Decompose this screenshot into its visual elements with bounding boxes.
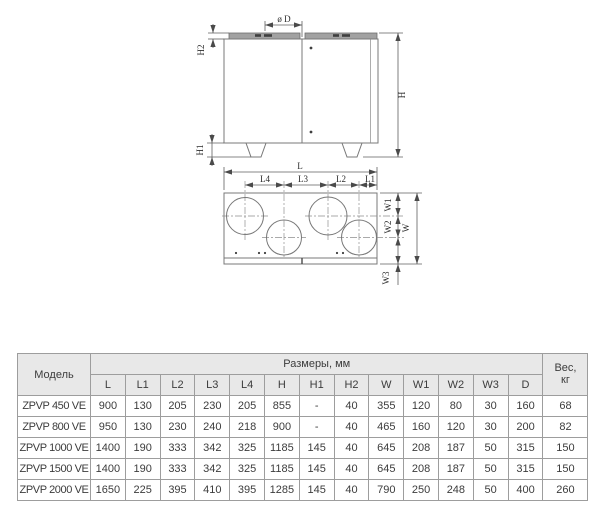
label-diameter-d: ø D [277,14,291,24]
value-cell: 342 [195,459,230,480]
dim-columns-row: LL1L2L3L4HH1H2WW1W2W3D [18,375,588,396]
value-cell: 645 [369,438,404,459]
roof-panel-right [305,33,377,39]
label-h: H [397,91,407,98]
value-cell: 342 [195,438,230,459]
column-header-d: D [508,375,543,396]
value-cell: 395 [160,480,195,501]
value-cell: 900 [91,396,126,417]
value-cell: 30 [473,396,508,417]
label-l4: L4 [260,174,270,184]
value-cell: 50 [473,480,508,501]
value-cell: 410 [195,480,230,501]
spec-table-container: Модель Размеры, мм Вес, кг LL1L2L3L4HH1H… [17,353,588,501]
column-header-w3: W3 [473,375,508,396]
dimensions-group-header: Размеры, мм [91,354,543,375]
door-handle-dot [310,131,313,134]
label-w: W [401,223,411,232]
value-cell: 900 [264,417,299,438]
table-body: ZPVP 450 VE900130205230205855-4035512080… [18,396,588,501]
value-cell: 1400 [91,438,126,459]
model-cell: ZPVP 1000 VE [18,438,91,459]
value-cell: 1285 [264,480,299,501]
value-cell: 160 [508,396,543,417]
value-cell: 190 [125,438,160,459]
column-header-w1: W1 [404,375,439,396]
weight-cell: 150 [543,438,588,459]
value-cell: 145 [299,459,334,480]
label-w2: W2 [383,221,393,234]
value-cell: 1400 [91,459,126,480]
column-header-h: H [264,375,299,396]
door-handle-dot [310,47,313,50]
value-cell: 208 [404,438,439,459]
column-header-l3: L3 [195,375,230,396]
value-cell: 1185 [264,438,299,459]
table-row: ZPVP 1500 VE1400190333342325118514540645… [18,459,588,480]
value-cell: 145 [299,438,334,459]
value-cell: 130 [125,417,160,438]
label-w3: W3 [381,271,391,284]
value-cell: 120 [438,417,473,438]
value-cell: 315 [508,459,543,480]
column-header-l4: L4 [230,375,265,396]
value-cell: 40 [334,438,369,459]
table-row: ZPVP 800 VE950130230240218900-4046516012… [18,417,588,438]
value-cell: 208 [404,459,439,480]
value-cell: 187 [438,459,473,480]
value-cell: 465 [369,417,404,438]
value-cell: 50 [473,459,508,480]
value-cell: 230 [160,417,195,438]
label-h1: H1 [195,145,205,156]
value-cell: 1185 [264,459,299,480]
label-l3: L3 [298,174,308,184]
foot-left [246,143,266,157]
column-header-w2: W2 [438,375,473,396]
value-cell: 950 [91,417,126,438]
value-cell: 130 [125,396,160,417]
value-cell: 50 [473,438,508,459]
label-l: L [297,161,303,171]
value-cell: 40 [334,417,369,438]
value-cell: 250 [404,480,439,501]
foot-right [342,143,362,157]
weight-cell: 260 [543,480,588,501]
model-cell: ZPVP 450 VE [18,396,91,417]
value-cell: 240 [195,417,230,438]
technical-drawing: ø D H2 H1 H L [0,0,600,348]
value-cell: 187 [438,438,473,459]
label-l1: L1 [365,174,375,184]
weight-header-line1: Вес, [543,363,587,375]
value-cell: 40 [334,459,369,480]
value-cell: 120 [404,396,439,417]
value-cell: - [299,417,334,438]
value-cell: 248 [438,480,473,501]
column-header-h1: H1 [299,375,334,396]
column-header-l2: L2 [160,375,195,396]
value-cell: 145 [299,480,334,501]
weight-cell: 150 [543,459,588,480]
value-cell: 205 [160,396,195,417]
label-h2: H2 [196,45,206,56]
label-w1: W1 [383,199,393,212]
top-view-base-strip [224,258,377,264]
value-cell: 315 [508,438,543,459]
value-cell: 160 [404,417,439,438]
unit-body [224,39,378,143]
value-cell: 645 [369,459,404,480]
value-cell: - [299,396,334,417]
value-cell: 395 [230,480,265,501]
value-cell: 225 [125,480,160,501]
front-view: ø D H2 H1 H [195,14,407,166]
dimensions-table: Модель Размеры, мм Вес, кг LL1L2L3L4HH1H… [17,353,588,501]
value-cell: 790 [369,480,404,501]
value-cell: 333 [160,438,195,459]
column-header-l1: L1 [125,375,160,396]
value-cell: 80 [438,396,473,417]
label-l2: L2 [336,174,346,184]
model-cell: ZPVP 2000 VE [18,480,91,501]
value-cell: 190 [125,459,160,480]
value-cell: 205 [230,396,265,417]
table-row: ZPVP 450 VE900130205230205855-4035512080… [18,396,588,417]
weight-cell: 82 [543,417,588,438]
value-cell: 325 [230,459,265,480]
top-view: L L4 L3 L2 L1 [222,161,422,285]
table-row: ZPVP 2000 VE1650225395410395128514540790… [18,480,588,501]
weight-header-line2: кг [543,375,587,387]
weight-cell: 68 [543,396,588,417]
column-header-h2: H2 [334,375,369,396]
value-cell: 333 [160,459,195,480]
column-header-w: W [369,375,404,396]
datasheet-page: ø D H2 H1 H L [0,0,600,508]
column-header-l: L [91,375,126,396]
value-cell: 40 [334,480,369,501]
value-cell: 400 [508,480,543,501]
table-row: ZPVP 1000 VE1400190333342325118514540645… [18,438,588,459]
model-column-header: Модель [18,354,91,396]
value-cell: 30 [473,417,508,438]
model-cell: ZPVP 800 VE [18,417,91,438]
model-cell: ZPVP 1500 VE [18,459,91,480]
value-cell: 200 [508,417,543,438]
value-cell: 40 [334,396,369,417]
value-cell: 218 [230,417,265,438]
value-cell: 355 [369,396,404,417]
top-view-body [224,193,377,258]
value-cell: 1650 [91,480,126,501]
value-cell: 325 [230,438,265,459]
weight-column-header: Вес, кг [543,354,588,396]
value-cell: 230 [195,396,230,417]
value-cell: 855 [264,396,299,417]
